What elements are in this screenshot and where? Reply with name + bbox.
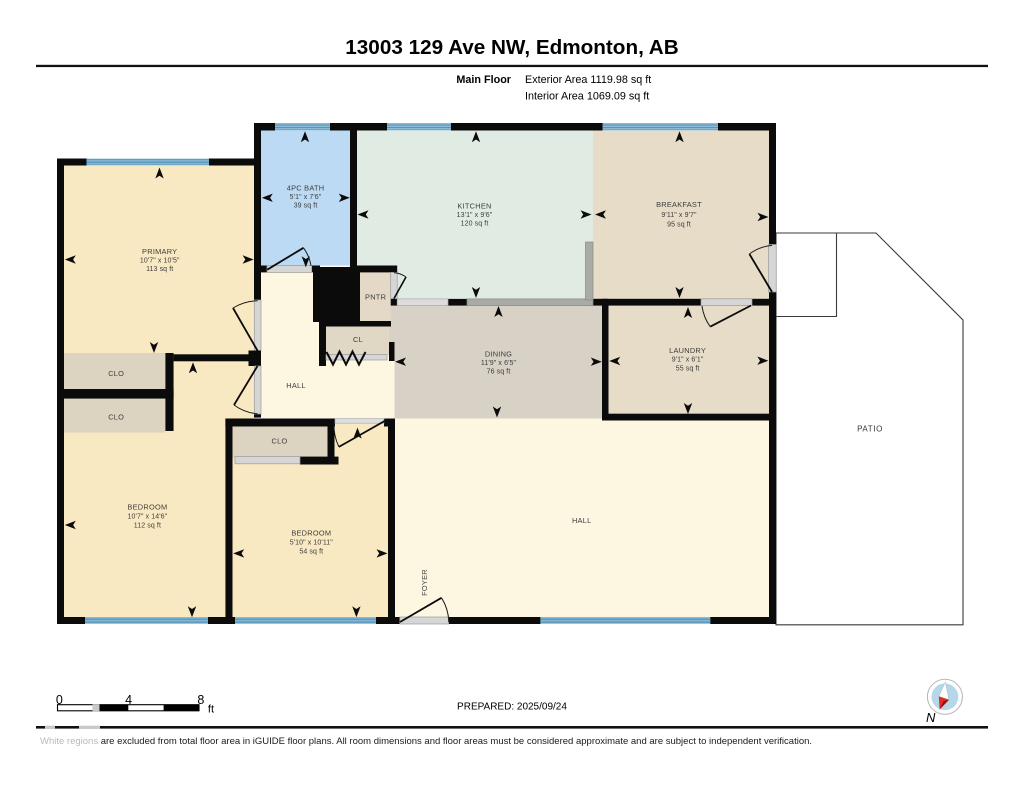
svg-text:76 sq ft: 76 sq ft bbox=[487, 368, 511, 375]
svg-text:Exterior Area 1119.98 sq ft: Exterior Area 1119.98 sq ft bbox=[525, 74, 651, 86]
svg-text:9'1" x 6'1": 9'1" x 6'1" bbox=[672, 357, 704, 364]
svg-text:10'7" x 10'5": 10'7" x 10'5" bbox=[140, 258, 180, 265]
svg-text:CLO: CLO bbox=[108, 369, 124, 378]
svg-text:CLO: CLO bbox=[108, 413, 124, 422]
svg-text:KITCHEN: KITCHEN bbox=[457, 202, 491, 211]
svg-text:White regions are excluded fro: White regions are excluded from total fl… bbox=[40, 736, 812, 747]
svg-text:112 sq ft: 112 sq ft bbox=[134, 522, 161, 529]
svg-text:Main Floor: Main Floor bbox=[456, 74, 511, 86]
svg-text:HALL: HALL bbox=[286, 381, 306, 390]
svg-text:11'9" x 6'5": 11'9" x 6'5" bbox=[481, 360, 517, 367]
svg-text:BEDROOM: BEDROOM bbox=[291, 529, 331, 538]
svg-text:PRIMARY: PRIMARY bbox=[142, 247, 177, 256]
svg-text:55 sq ft: 55 sq ft bbox=[676, 365, 700, 372]
svg-text:PREPARED: 2025/09/24: PREPARED: 2025/09/24 bbox=[457, 702, 567, 713]
svg-text:N: N bbox=[926, 710, 936, 725]
svg-text:Interior Area 1069.09 sq ft: Interior Area 1069.09 sq ft bbox=[525, 91, 649, 103]
svg-text:95 sq ft: 95 sq ft bbox=[667, 221, 691, 228]
svg-text:54 sq ft: 54 sq ft bbox=[299, 548, 323, 555]
svg-text:DINING: DINING bbox=[485, 349, 512, 358]
svg-text:FOYER: FOYER bbox=[420, 569, 429, 596]
svg-text:4PC BATH: 4PC BATH bbox=[287, 184, 325, 193]
svg-text:CLO: CLO bbox=[272, 437, 288, 446]
svg-text:BREAKFAST: BREAKFAST bbox=[656, 200, 702, 209]
svg-text:PATIO: PATIO bbox=[857, 425, 883, 434]
svg-text:113 sq ft: 113 sq ft bbox=[146, 266, 173, 273]
svg-text:120 sq ft: 120 sq ft bbox=[461, 221, 489, 228]
svg-text:5'1" x 7'6": 5'1" x 7'6" bbox=[290, 194, 322, 201]
svg-text:10'7" x 14'6": 10'7" x 14'6" bbox=[128, 513, 168, 520]
svg-text:LAUNDRY: LAUNDRY bbox=[669, 346, 706, 355]
svg-text:ft: ft bbox=[208, 704, 214, 716]
svg-text:5'10" x 10'11": 5'10" x 10'11" bbox=[290, 540, 334, 547]
svg-text:CL: CL bbox=[353, 335, 363, 344]
svg-text:BEDROOM: BEDROOM bbox=[127, 502, 167, 511]
svg-text:9'11" x 9'7": 9'11" x 9'7" bbox=[661, 212, 697, 219]
svg-text:13003 129 Ave NW, Edmonton, AB: 13003 129 Ave NW, Edmonton, AB bbox=[345, 36, 678, 59]
svg-text:HALL: HALL bbox=[572, 516, 592, 525]
svg-text:13'1" x 9'6": 13'1" x 9'6" bbox=[457, 212, 493, 219]
svg-text:PNTR: PNTR bbox=[365, 292, 386, 301]
svg-text:39 sq ft: 39 sq ft bbox=[294, 203, 318, 210]
